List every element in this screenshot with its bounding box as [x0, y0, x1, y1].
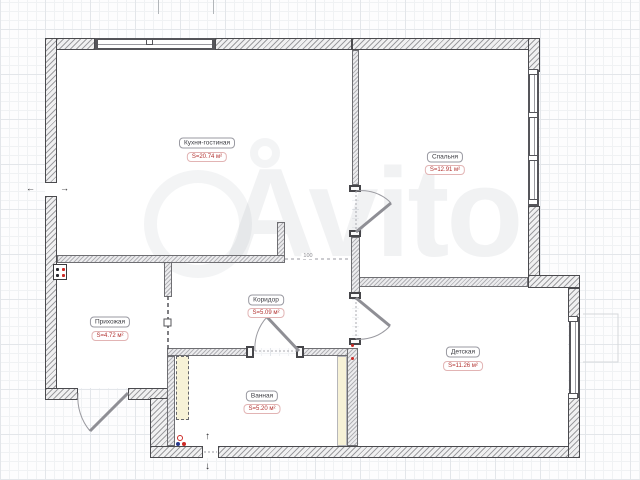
electrical-panel: [53, 264, 67, 280]
door-post: [349, 185, 361, 192]
wall-right-bedroom-top: [528, 38, 540, 72]
plumbing-dot-hot: [182, 442, 186, 446]
room-label-bathroom: Ванная: [246, 391, 278, 402]
duct-strip: [337, 356, 347, 446]
top-tick: [213, 0, 214, 14]
entrance-opening: [203, 446, 218, 458]
wall-right-bedroom-bottom: [528, 206, 540, 281]
window-marker: [146, 39, 153, 45]
room-fill-bedroom: [359, 50, 528, 278]
window-marker: [568, 316, 578, 322]
entry-arrow-up-icon: ↑: [205, 432, 210, 442]
bath-cabinet: [176, 356, 189, 420]
wall-right-children-top: [568, 288, 580, 318]
wall-bottom-left: [150, 446, 203, 458]
window-kitchen: [95, 38, 215, 50]
window-marker: [528, 155, 538, 161]
room-area-kitchen: S=20.74 м²: [187, 152, 227, 162]
wall-hallway-corridor: [164, 262, 172, 297]
room-area-bedroom: S=12.91 м²: [425, 165, 465, 175]
wall-left-lower: [45, 196, 57, 400]
wall-right-step: [528, 275, 580, 288]
door-post: [349, 292, 361, 299]
wall-kitchen-bedroom: [352, 50, 359, 185]
opening-arrow-left-icon: ←: [26, 184, 35, 193]
wall-hallway-bottom-left: [45, 388, 78, 400]
red-dot: [351, 357, 354, 360]
wall-left-upper: [45, 38, 57, 183]
room-area-children: S=11.26 м²: [443, 361, 483, 371]
door-post: [246, 346, 254, 358]
window-marker: [528, 112, 538, 118]
panel-dot: [56, 274, 59, 277]
left-wall-opening: [45, 183, 57, 196]
window-children: [569, 318, 580, 397]
entry-arrow-down-icon: ↓: [205, 462, 210, 472]
floor-plan-canvas: Avito: [0, 0, 640, 480]
top-tick: [158, 0, 159, 14]
room-label-kitchen: Кухня-гостиная: [179, 138, 235, 149]
window-marker: [568, 393, 578, 399]
wall-right-children-bottom: [568, 397, 580, 458]
opening-arrow-right-icon: →: [60, 184, 69, 193]
wall-top-middle: [215, 38, 352, 50]
wall-bottom-main: [218, 446, 580, 458]
room-label-children: Детская: [446, 347, 480, 358]
wall-bathroom-left: [167, 356, 175, 446]
room-area-bathroom: S=5.20 м²: [244, 404, 281, 414]
wall-bathroom-children: [347, 348, 358, 446]
window-marker: [528, 199, 538, 205]
dimension-label: 100: [301, 253, 314, 259]
wall-kitchen-stub: [277, 222, 285, 256]
room-label-hallway: Прихожая: [90, 317, 130, 328]
panel-dot: [62, 274, 65, 277]
wall-top-right: [352, 38, 540, 50]
room-area-hallway: S=4.72 м²: [92, 331, 129, 341]
window-bedroom: [528, 70, 539, 206]
wall-bathroom-top-right: [303, 348, 352, 356]
door-post: [296, 346, 304, 358]
wall-bathroom-top-left: [167, 348, 248, 356]
room-label-corridor: Коридор: [248, 295, 284, 306]
panel-dot: [56, 268, 59, 271]
window-marker: [528, 69, 538, 75]
room-label-bedroom: Спальня: [427, 152, 463, 163]
red-dot: [351, 344, 354, 347]
panel-dot: [62, 268, 65, 271]
plumbing-dot-cold: [176, 442, 180, 446]
room-area-corridor: S=5.09 м²: [248, 308, 285, 318]
door-post: [349, 230, 361, 237]
wall-bedroom-children: [359, 277, 528, 287]
